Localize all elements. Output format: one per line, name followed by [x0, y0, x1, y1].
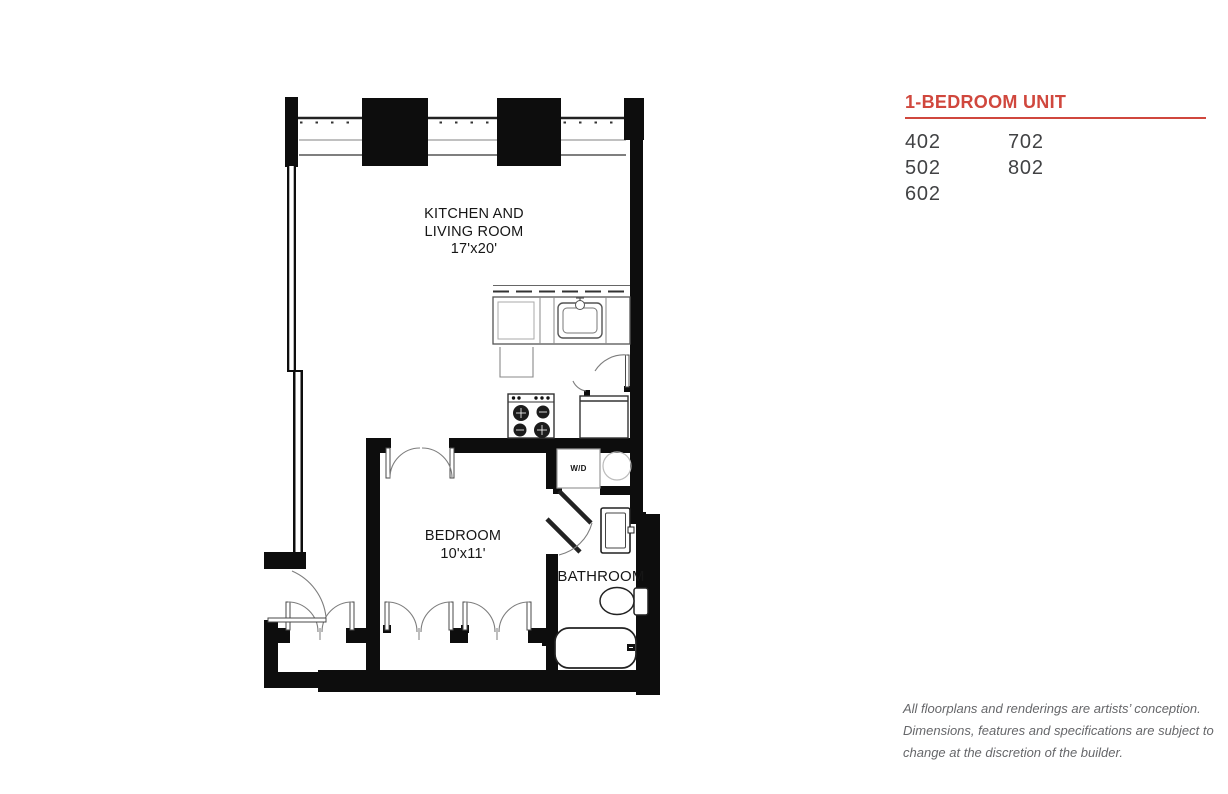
- bedroom-dimensions: 10'x11': [440, 546, 485, 562]
- bathroom-door: [547, 491, 592, 555]
- unit-number: 702: [1008, 131, 1044, 154]
- disclaimer: All floorplans and renderings are artist…: [903, 698, 1223, 764]
- toilet: [600, 588, 648, 616]
- kitchen-living-dimensions: 17'x20': [451, 241, 497, 257]
- title-rule: [905, 117, 1206, 119]
- structural-column: [497, 98, 561, 166]
- water-heater: [603, 452, 631, 480]
- entry-door: [268, 571, 326, 622]
- floorplan: W/D KITCHEN AND LIVING ROOM 17'x20' BEDR…: [255, 85, 670, 705]
- disclaimer-line: change at the discretion of the builder.: [903, 742, 1223, 764]
- doors: [268, 355, 629, 640]
- washer-dryer-closet: W/D: [557, 449, 600, 488]
- bathroom-vanity: [601, 508, 634, 553]
- unit-number: 802: [1008, 157, 1044, 180]
- bedroom-double-door: [386, 448, 454, 478]
- disclaimer-line: Dimensions, features and specifications …: [903, 720, 1223, 742]
- washer-dryer-label: W/D: [570, 464, 586, 473]
- floorplan-svg: W/D KITCHEN AND LIVING ROOM 17'x20' BEDR…: [255, 85, 670, 705]
- bedroom-label: BEDROOM: [425, 528, 501, 544]
- kitchen-living-label: KITCHEN AND: [424, 206, 524, 222]
- unit-number: 502: [905, 157, 941, 180]
- unit-number: 602: [905, 183, 941, 206]
- pantry-cabinet: [580, 396, 628, 438]
- page-title: 1-BEDROOM UNIT: [905, 92, 1066, 113]
- kitchen-living-label: LIVING ROOM: [425, 224, 524, 240]
- kitchen-sink: [558, 297, 602, 338]
- pantry-door: [573, 355, 629, 391]
- kitchen-counter: [493, 286, 630, 378]
- unit-number: 402: [905, 131, 941, 154]
- stove: [508, 394, 554, 438]
- disclaimer-line: All floorplans and renderings are artist…: [903, 698, 1223, 720]
- window-wall: [296, 118, 638, 155]
- bathtub: [555, 628, 636, 668]
- structural-column: [362, 98, 428, 166]
- bathroom-label: BATHROOM: [557, 568, 644, 585]
